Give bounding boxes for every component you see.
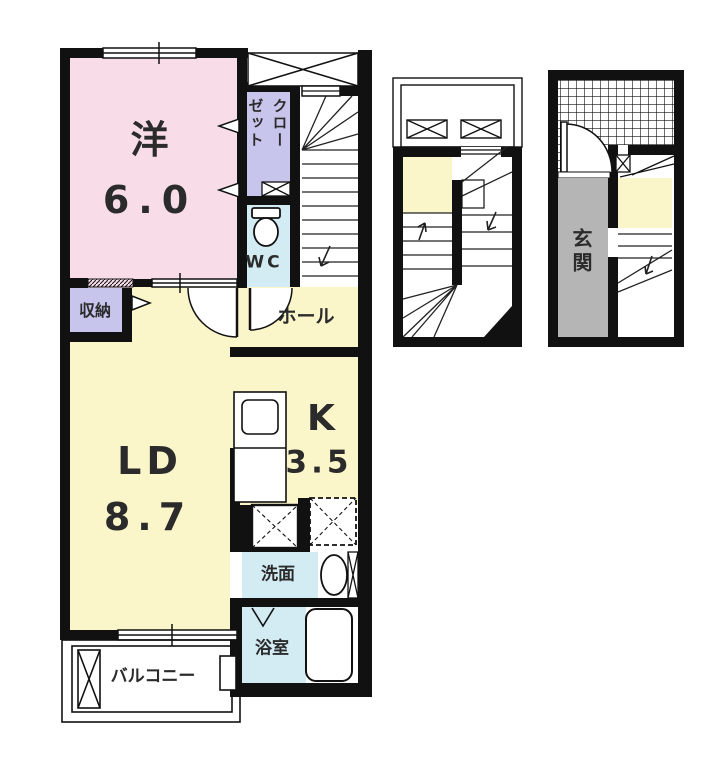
living-dining-area — [70, 342, 230, 630]
understair-closet — [616, 155, 674, 177]
toilet-icon — [252, 208, 280, 246]
closet-label-col2: ゼット — [246, 98, 267, 192]
living-dining-size: 8.7 — [104, 498, 192, 536]
floor-plan-page: 洋 6.0 ゼット クロー WC ホール 収納 LD 8.7 K 3.5 洗面 … — [0, 0, 723, 763]
stairwell-top-balcony — [393, 78, 522, 147]
stairwell-landing — [403, 157, 452, 213]
storage-label: 収納 — [79, 303, 111, 319]
entrance-stair-landing — [618, 178, 672, 228]
entrance-step-edge — [558, 172, 610, 178]
main-floor-plan — [60, 42, 372, 722]
entrance-plan — [548, 70, 684, 347]
kitchen-sink — [242, 400, 278, 434]
balcony-drain-box — [220, 656, 236, 690]
hall-label: ホール — [277, 308, 334, 327]
kitchen-counter — [234, 392, 286, 502]
main-staircase — [302, 86, 358, 276]
entrance-steps — [618, 234, 672, 292]
storage-top-hatch — [88, 279, 133, 287]
western-room-size: 6.0 — [103, 181, 197, 219]
washbasin-icon — [321, 555, 347, 595]
entrance-label: 玄関 — [572, 228, 596, 276]
stair-arrow-up — [418, 223, 426, 240]
bathtub-icon — [306, 609, 352, 681]
entrance-stair-arrow — [645, 256, 653, 274]
bathroom-label: 浴室 — [255, 641, 289, 658]
entrance-door-leaf — [561, 122, 567, 172]
western-room-name: 洋 — [130, 121, 173, 159]
closet-label: ゼット クロー — [244, 98, 292, 192]
kitchen-name: K — [307, 401, 335, 437]
stairwell-plan — [393, 78, 522, 347]
kitchen-size: 3.5 — [286, 448, 353, 479]
living-dining-name: LD — [117, 442, 183, 480]
wc-label: WC — [245, 255, 282, 272]
stairwell-corner-fill — [484, 306, 512, 337]
stairwell-top-opening — [461, 147, 501, 157]
eaves-crossed-box — [248, 53, 358, 86]
western-room-area — [70, 58, 237, 288]
washer-pan — [252, 505, 298, 548]
floor-plan-drawing — [0, 0, 723, 763]
stair-down-arrow — [319, 246, 330, 266]
closet-label-col1: クロー — [270, 98, 291, 192]
washroom-label: 洗面 — [261, 567, 295, 584]
balcony-label: バルコニー — [111, 669, 196, 686]
washroom-side-rack — [348, 552, 358, 598]
fridge-space — [310, 498, 356, 545]
